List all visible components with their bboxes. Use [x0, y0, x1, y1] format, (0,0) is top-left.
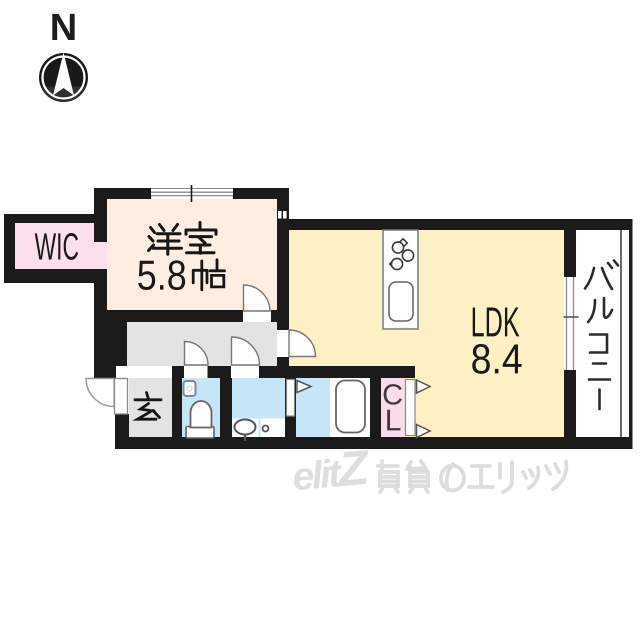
- svg-text:5.8: 5.8: [137, 253, 187, 299]
- svg-text:N: N: [50, 7, 77, 49]
- svg-text:WIC: WIC: [35, 226, 79, 268]
- svg-text:L: L: [385, 404, 402, 437]
- svg-text:8.4: 8.4: [471, 336, 523, 383]
